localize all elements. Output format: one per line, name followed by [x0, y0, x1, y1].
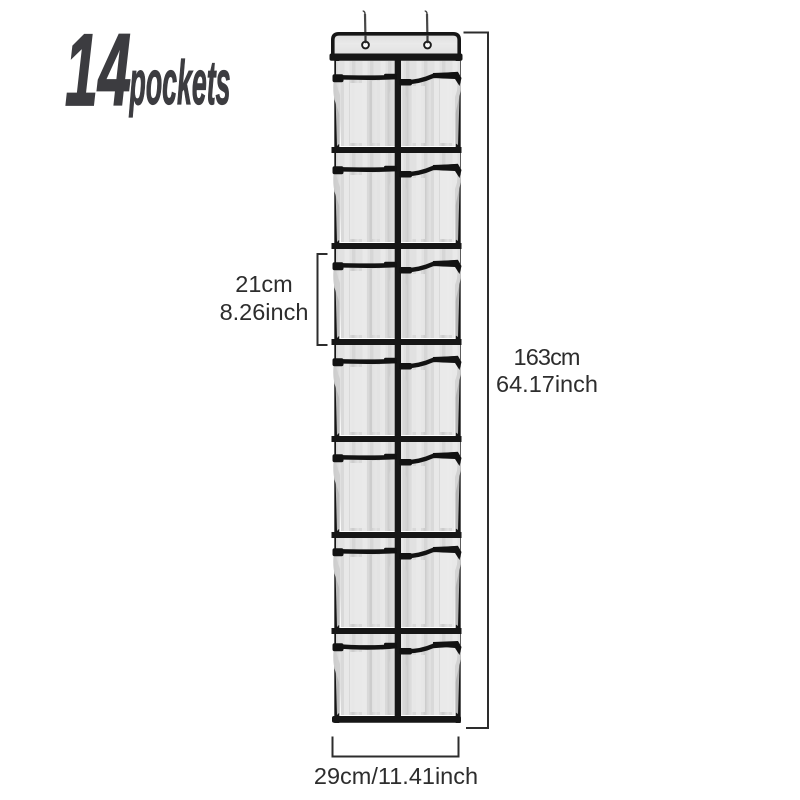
svg-text:pockets: pockets	[129, 49, 231, 118]
svg-text:14: 14	[65, 13, 131, 127]
svg-text:8.26inch: 8.26inch	[220, 299, 309, 325]
svg-text:29cm/11.41inch: 29cm/11.41inch	[314, 763, 478, 789]
svg-text:21cm: 21cm	[235, 271, 292, 297]
svg-text:163cm: 163cm	[514, 344, 581, 370]
svg-text:64.17inch: 64.17inch	[496, 371, 598, 397]
